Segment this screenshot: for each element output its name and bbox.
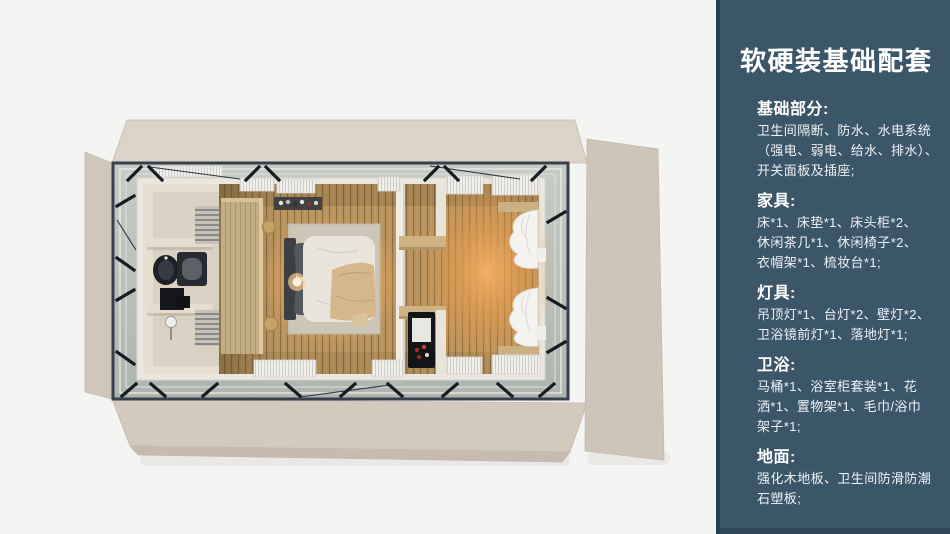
- section-line: 马桶*1、浴室柜套装*1、花: [757, 377, 938, 397]
- section-line: 休闲茶几*1、休闲椅子*2、: [757, 233, 938, 253]
- section-line: 吊顶灯*1、台灯*2、壁灯*2、: [757, 305, 938, 325]
- panel-title: 软硬装基础配套: [740, 46, 938, 76]
- section-heading: 家具:: [757, 192, 938, 211]
- vanity-counter: [177, 252, 207, 286]
- section-line: 卫浴镜前灯*1、落地灯*1;: [757, 325, 938, 345]
- section-line: 架子*1;: [757, 417, 938, 437]
- washbasin: [153, 255, 179, 285]
- section-line: 开关面板及插座;: [757, 161, 938, 181]
- section-line: 床*1、床垫*1、床头柜*2、: [757, 213, 938, 233]
- section-flooring: 地面: 强化木地板、卫生间防滑防潮 石塑板;: [757, 448, 938, 509]
- section-line: 石塑板;: [757, 489, 938, 509]
- throw-blanket: [330, 263, 376, 321]
- slide: 软硬装基础配套 基础部分: 卫生间隔断、防水、水电系统 （强电、弱电、给水、排水…: [0, 0, 950, 534]
- info-panel: 软硬装基础配套 基础部分: 卫生间隔断、防水、水电系统 （强电、弱电、给水、排水…: [716, 0, 950, 534]
- mini-cabinet: [408, 312, 435, 368]
- room-top-view-render: [0, 0, 720, 534]
- section-line: 卫生间隔断、防水、水电系统: [757, 121, 938, 141]
- table-lamp: [293, 278, 302, 287]
- section-heading: 卫浴:: [757, 356, 938, 375]
- section-furniture: 家具: 床*1、床垫*1、床头柜*2、 休闲茶几*1、休闲椅子*2、 衣帽架*1…: [757, 192, 938, 273]
- section-line: 洒*1、置物架*1、毛巾/浴巾: [757, 397, 938, 417]
- wall-rack: [274, 197, 322, 210]
- section-basics: 基础部分: 卫生间隔断、防水、水电系统 （强电、弱电、给水、排水）、 开关面板及…: [757, 100, 938, 181]
- basket: [264, 317, 278, 331]
- section-line: 强化木地板、卫生间防滑防潮: [757, 469, 938, 489]
- wood-divider: [221, 198, 263, 354]
- section-heading: 灯具:: [757, 284, 938, 303]
- spec-sections: 基础部分: 卫生间隔断、防水、水电系统 （强电、弱电、给水、排水）、 开关面板及…: [740, 100, 938, 509]
- section-bathroom: 卫浴: 马桶*1、浴室柜套装*1、花 洒*1、置物架*1、毛巾/浴巾 架子*1;: [757, 356, 938, 437]
- section-heading: 地面:: [757, 448, 938, 467]
- section-line: 衣帽架*1、梳妆台*1;: [757, 253, 938, 273]
- section-heading: 基础部分:: [757, 100, 938, 119]
- section-lighting: 灯具: 吊顶灯*1、台灯*2、壁灯*2、 卫浴镜前灯*1、落地灯*1;: [757, 284, 938, 345]
- basket: [263, 221, 276, 234]
- section-line: （强电、弱电、给水、排水）、: [757, 141, 938, 161]
